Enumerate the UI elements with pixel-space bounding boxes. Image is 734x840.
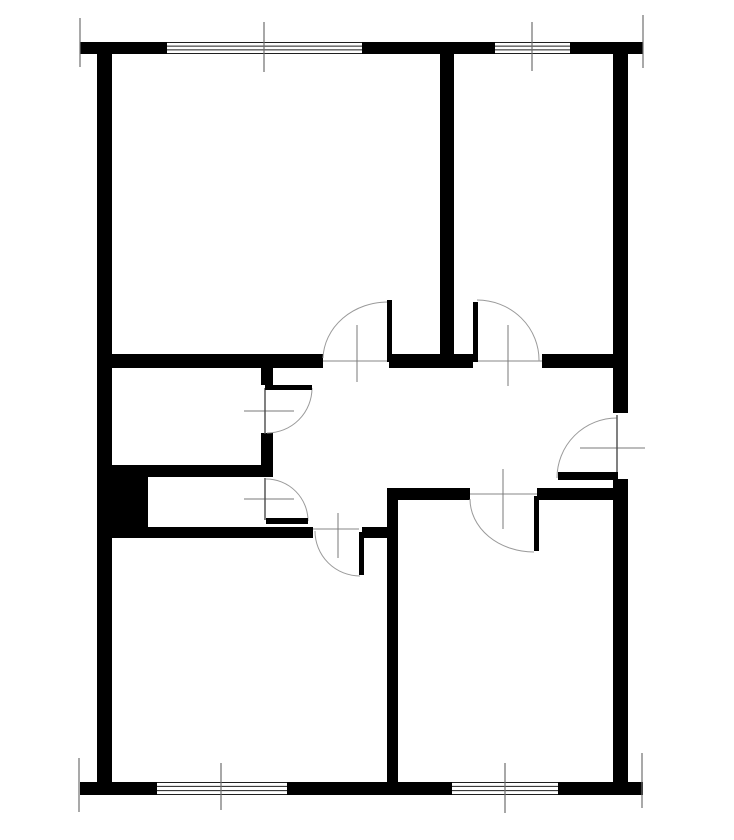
wall-hall-south-wall-right	[362, 527, 387, 538]
wall-hall-north-wall-mid	[389, 354, 473, 368]
wall-right-wall-upper	[613, 42, 628, 413]
window-bottom-left	[157, 782, 287, 795]
floor-plan	[0, 0, 734, 840]
top-right-room-door-leaf	[473, 302, 478, 362]
wall-top-wall-left	[80, 42, 167, 54]
bathroom-door-leaf	[265, 385, 312, 390]
top-left-room-door-leaf	[387, 300, 392, 362]
entrance-door-leaf	[558, 472, 618, 480]
floor-plan-drawing	[0, 0, 734, 840]
wall-bottom-right-room-north-wall-right	[537, 488, 627, 500]
wall-partition-bottom-rooms	[387, 490, 398, 782]
wall-bottom-wall-left	[80, 782, 157, 795]
wall-bathroom-wall-stub-upper	[261, 368, 273, 385]
wall-top-wall-mid	[362, 42, 495, 54]
bottom-right-room-door-leaf	[534, 496, 539, 551]
wall-duct-shaft-block	[112, 465, 148, 530]
wall-bottom-wall-mid	[287, 782, 452, 795]
wall-bottom-right-room-north-wall-left	[387, 488, 470, 500]
wall-partition-top-rooms	[440, 42, 454, 360]
wall-bottom-wall-right	[558, 782, 643, 795]
wall-top-wall-right	[570, 42, 643, 54]
wall-hall-north-wall-left	[112, 354, 323, 368]
wall-hall-south-wall-left	[112, 527, 313, 538]
wall-hall-north-wall-right	[542, 354, 613, 368]
wall-left-wall	[97, 42, 112, 795]
wc-door-leaf	[266, 518, 308, 524]
wall-right-wall-lower	[613, 479, 628, 795]
bottom-left-room-door-leaf	[359, 532, 364, 575]
